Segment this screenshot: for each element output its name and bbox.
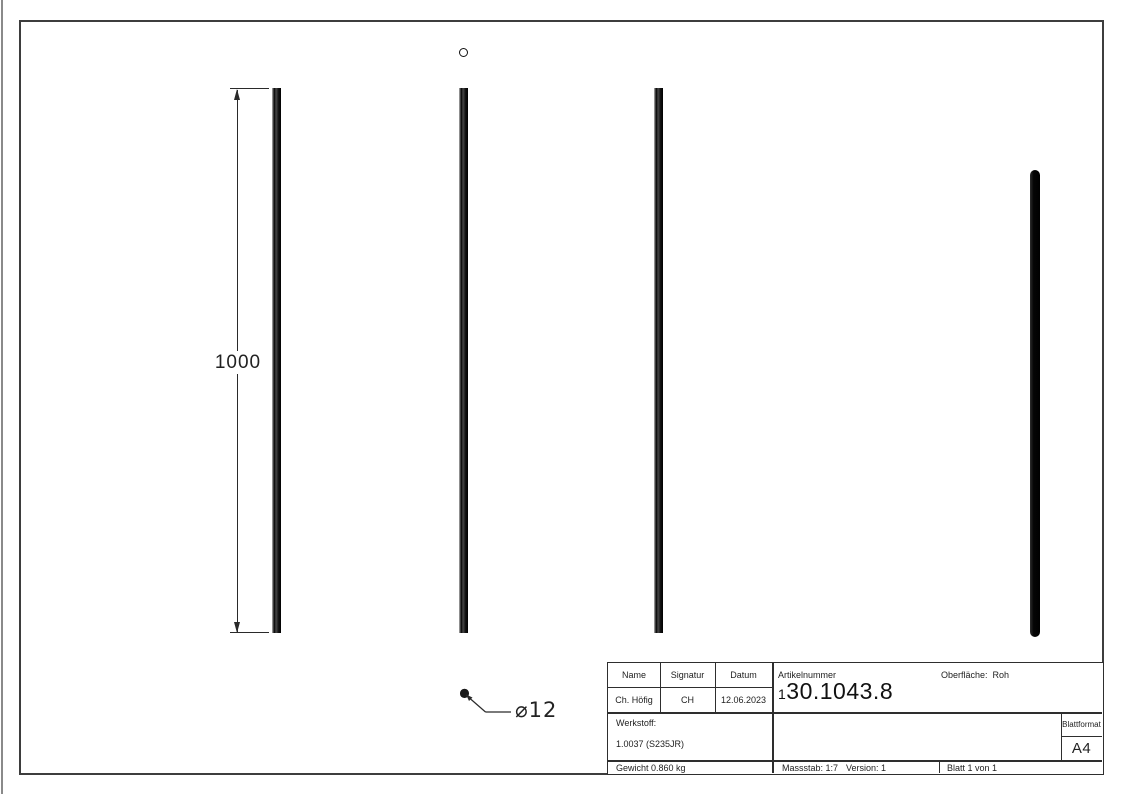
titleblock-divider (939, 760, 940, 773)
drawing-sheet: 1000 ⌀12 Name Signatur Datum Ch. Höfig C… (0, 0, 1123, 794)
name-header: Name (608, 670, 660, 680)
oberflaeche-label-text: Oberfläche: (941, 670, 988, 680)
werkstoff-value: 1.0037 (S235JR) (616, 739, 684, 749)
blattformat-label: Blattformat (1061, 720, 1102, 729)
datum-value: 12.06.2023 (715, 695, 772, 705)
signatur-value: CH (660, 695, 715, 705)
rod-top-end-view-circle (459, 48, 468, 57)
massstab-text: Massstab: 1:7 (782, 763, 838, 773)
blattformat-value: A4 (1061, 740, 1102, 757)
signatur-header: Signatur (660, 670, 715, 680)
title-block: Name Signatur Datum Ch. Höfig CH 12.06.2… (607, 662, 1104, 775)
version-text: Version: 1 (846, 763, 886, 773)
name-value: Ch. Höfig (608, 695, 660, 705)
datum-header: Datum (715, 670, 772, 680)
rod-view-side (654, 88, 663, 633)
titleblock-divider (608, 760, 1102, 762)
dimension-length-label: 1000 (213, 351, 263, 374)
oberflaeche-value: Roh (993, 670, 1010, 680)
dimension-arrow-top (234, 89, 240, 100)
titleblock-divider (1061, 736, 1102, 737)
titleblock-divider (772, 663, 774, 773)
titleblock-divider (608, 687, 772, 688)
rod-view-front (459, 88, 468, 633)
blatt-text: Blatt 1 von 1 (947, 763, 997, 773)
dimension-arrow-bottom (234, 622, 240, 633)
oberflaeche-label: Oberfläche: Roh (941, 670, 1009, 680)
titleblock-divider (608, 712, 1102, 714)
page-edge-line (1, 0, 3, 794)
artikelnummer-value: 130.1043.8 (778, 680, 893, 703)
diameter-leader-line (456, 684, 516, 716)
diameter-label: ⌀12 (515, 700, 557, 721)
rod-view-isometric (1030, 170, 1040, 637)
gewicht-text: Gewicht 0.860 kg (616, 763, 686, 773)
werkstoff-label: Werkstoff: (616, 718, 656, 728)
rod-view-left (272, 88, 281, 633)
